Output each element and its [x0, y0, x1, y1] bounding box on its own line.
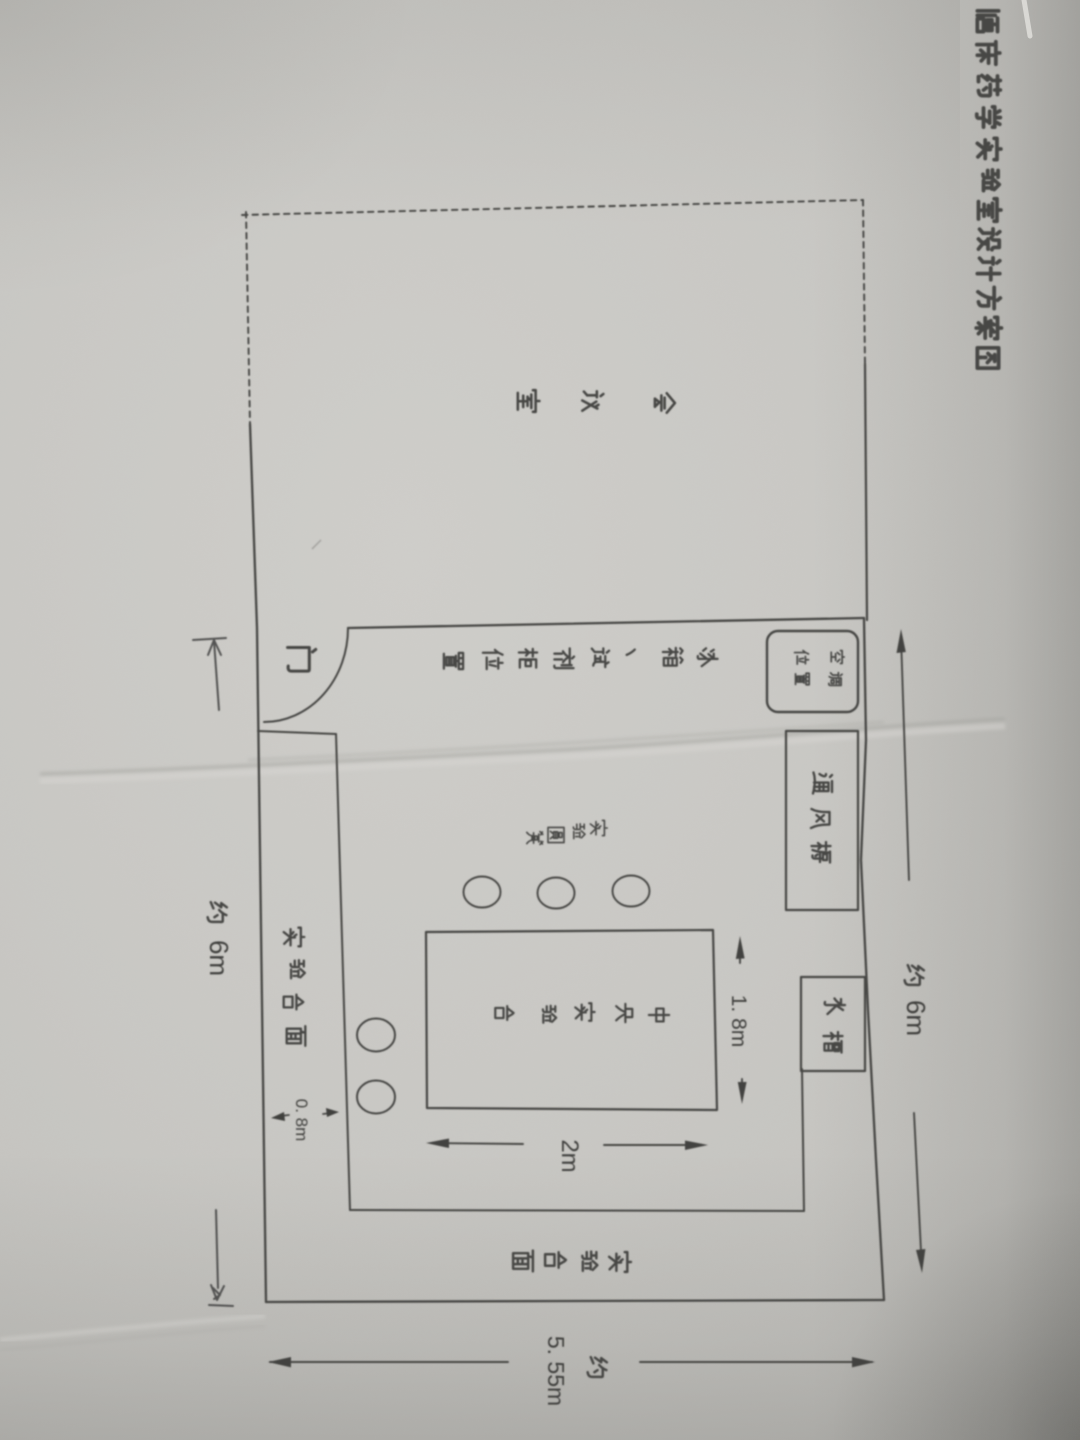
- svg-text:6m: 6m: [901, 1000, 931, 1036]
- svg-text:0. 8m: 0. 8m: [292, 1099, 311, 1142]
- svg-text:6m: 6m: [204, 940, 234, 976]
- svg-text:2m: 2m: [556, 1139, 583, 1172]
- svg-text:5. 55m: 5. 55m: [543, 1336, 569, 1406]
- svg-text:1. 8m: 1. 8m: [727, 995, 750, 1048]
